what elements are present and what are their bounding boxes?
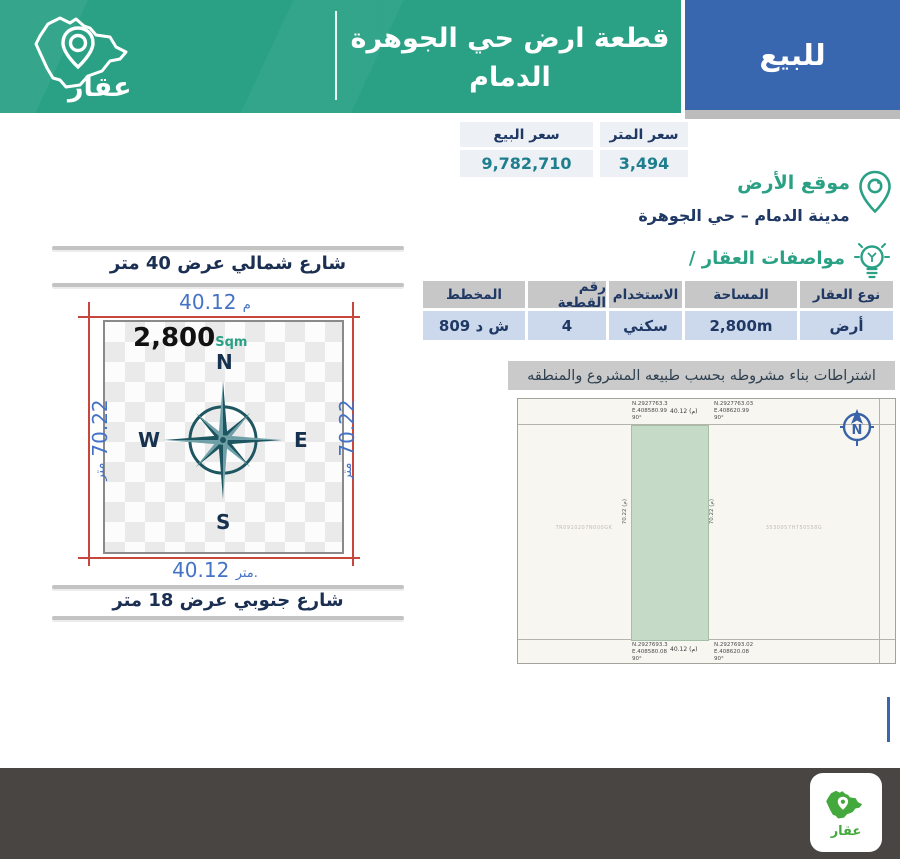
spec-val-area: 2,800m bbox=[685, 311, 797, 340]
spec-header-row: نوع العقار المساحة الاستخدام رقم القطعة … bbox=[423, 281, 893, 308]
plan-left-parcel-id: TR0910207N000GK bbox=[540, 525, 628, 531]
left-dimension-value: 70.22 bbox=[88, 399, 112, 456]
plan-dim-right: 70.22 (م) bbox=[709, 499, 715, 524]
spec-val-plan: ش د 809 bbox=[423, 311, 525, 340]
sale-price-header: سعر البيع bbox=[460, 122, 593, 147]
plan-north-arrow-icon: N bbox=[834, 404, 880, 450]
plan-dim-bottom: 40.12 (م) bbox=[670, 646, 698, 653]
listing-title-line1: قطعة ارض حي الجوهرة bbox=[351, 19, 670, 58]
sale-price-value: 9,782,710 bbox=[460, 150, 593, 177]
plan-north-letter: N bbox=[852, 423, 863, 438]
plan-dim-left: 70.22 (م) bbox=[622, 499, 628, 524]
right-edge-accent bbox=[887, 697, 890, 742]
plan-dim-top: 40.12 (م) bbox=[670, 408, 698, 415]
location-value: مدينة الدمام – حي الجوهرة bbox=[600, 206, 888, 225]
top-dimension-unit: م bbox=[243, 298, 251, 313]
top-dimension-label: 40.12 م bbox=[120, 290, 310, 314]
compass-south-label: S bbox=[216, 510, 230, 534]
right-dimension-value: 70.22 bbox=[335, 399, 359, 456]
brand-banner: عقار قطعة ارض حي الجوهرة الدمام bbox=[0, 0, 681, 113]
compass-rose-icon bbox=[158, 370, 288, 510]
bottom-dimension-unit: متر. bbox=[236, 566, 258, 581]
right-dimension-label: 70.22 متر bbox=[327, 365, 367, 515]
plan-parcel bbox=[631, 425, 709, 641]
spec-val-plot-number: 4 bbox=[528, 311, 606, 340]
flyer-canvas: عقار قطعة ارض حي الجوهرة الدمام للبيع سع… bbox=[0, 0, 900, 859]
south-street-label: شارع جنوبي عرض 18 متر bbox=[52, 590, 404, 611]
top-dimension-value: 40.12 bbox=[179, 290, 236, 314]
spec-col-usage: الاستخدام bbox=[609, 281, 682, 308]
specs-heading: مواصفات العقار / bbox=[660, 248, 845, 269]
south-street-line-top bbox=[52, 585, 404, 589]
spec-col-area: المساحة bbox=[685, 281, 797, 308]
meter-price-value: 3,494 bbox=[600, 150, 688, 177]
footer-band bbox=[0, 768, 900, 859]
plan-coord-bottom-right: N.2927693.02 E.408620.08 90° bbox=[714, 642, 753, 663]
plan-coord-top-right: N.2927763.03 E.408620.99 90° bbox=[714, 401, 753, 422]
left-dimension-unit: متر bbox=[93, 463, 108, 481]
plan-coord-top-left: N.2927763.3 E.408580.99 90° bbox=[632, 401, 668, 422]
listing-title-line2: الدمام bbox=[469, 58, 551, 97]
meter-price-header: سعر المتر bbox=[600, 122, 688, 147]
compass-rose: N S W E bbox=[138, 348, 308, 534]
brand-logo-wordmark: عقار bbox=[68, 72, 132, 103]
spec-col-plan: المخطط bbox=[423, 281, 525, 308]
bottom-dimension-label: 40.12 متر. bbox=[120, 558, 310, 582]
building-conditions-note: اشتراطات بناء مشروطه بحسب طبيعه المشروع … bbox=[508, 361, 895, 390]
north-street-line-top bbox=[52, 246, 404, 250]
south-street-line-bottom bbox=[52, 616, 404, 620]
location-heading: موقع الأرض bbox=[690, 172, 850, 194]
left-dimension-label: 70.22 متر bbox=[80, 365, 120, 515]
compass-west-label: W bbox=[138, 428, 160, 452]
spec-col-plot-number: رقم القطعة bbox=[528, 281, 606, 308]
bottom-dimension-value: 40.12 bbox=[172, 558, 229, 582]
survey-plan: N.2927763.3 E.408580.99 90° N.2927763.03… bbox=[517, 398, 896, 664]
compass-east-label: E bbox=[294, 428, 308, 452]
footer-logo-card: عقار bbox=[810, 773, 882, 852]
plan-coord-bottom-left: N.2927693.3 E.408580.08 90° bbox=[632, 642, 668, 663]
spec-val-property-type: أرض bbox=[800, 311, 893, 340]
for-sale-badge: للبيع bbox=[685, 0, 900, 110]
listing-title: قطعة ارض حي الجوهرة الدمام bbox=[345, 10, 675, 106]
dim-line-top bbox=[78, 316, 360, 318]
banner-divider bbox=[335, 11, 337, 100]
footer-saudi-map-icon bbox=[823, 786, 869, 826]
north-street-label: شارع شمالي عرض 40 متر bbox=[52, 253, 404, 274]
spec-value-row: أرض 2,800m سكني 4 ش د 809 bbox=[423, 311, 893, 340]
plan-right-parcel-id: 3530057H750558G bbox=[750, 525, 838, 531]
spec-col-property-type: نوع العقار bbox=[800, 281, 893, 308]
footer-logo-wordmark: عقار bbox=[831, 824, 862, 839]
spec-val-usage: سكني bbox=[609, 311, 682, 340]
for-sale-badge-shadow bbox=[685, 110, 900, 119]
north-street-line-bottom bbox=[52, 283, 404, 287]
spec-table: نوع العقار المساحة الاستخدام رقم القطعة … bbox=[423, 281, 893, 340]
right-dimension-unit: متر bbox=[340, 463, 355, 481]
